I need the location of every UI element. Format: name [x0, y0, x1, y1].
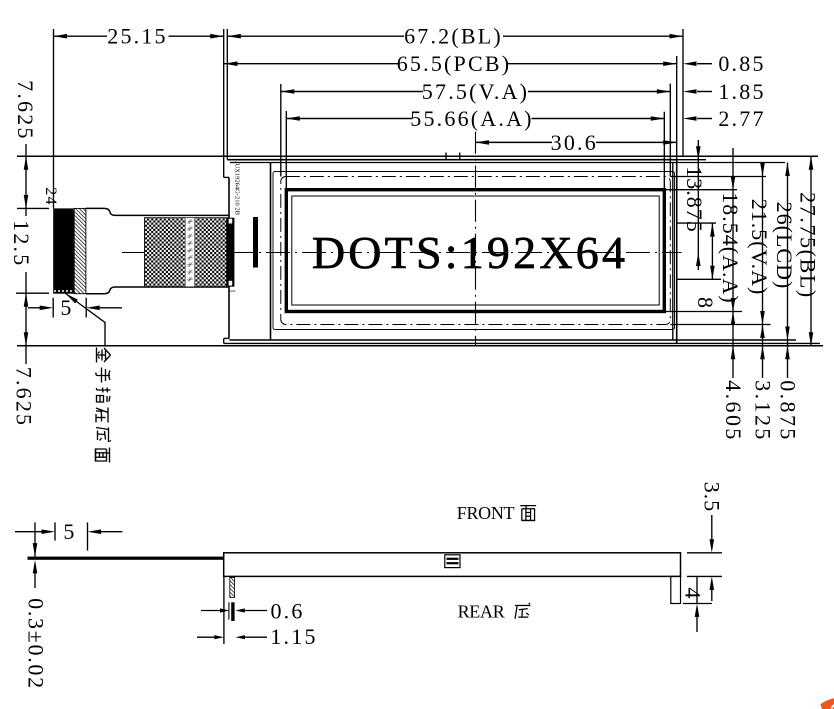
svg-text:27.75(BL): 27.75(BL)	[796, 192, 821, 299]
svg-text:25.15: 25.15	[107, 24, 168, 49]
svg-text:5: 5	[63, 519, 76, 544]
svg-text:8: 8	[693, 297, 718, 309]
svg-text:18.54(A.A): 18.54(A.A)	[718, 192, 743, 303]
svg-text:1.85: 1.85	[718, 79, 765, 104]
svg-text:5: 5	[60, 295, 73, 320]
svg-text:REAR: REAR	[458, 601, 505, 621]
svg-text:21.5(V.A): 21.5(V.A)	[747, 199, 772, 296]
svg-text:1.15: 1.15	[270, 624, 317, 649]
svg-text:0.6: 0.6	[270, 598, 304, 623]
svg-text:FRONT: FRONT	[457, 503, 515, 523]
svg-text:3.5: 3.5	[699, 482, 724, 513]
svg-text:7.625: 7.625	[12, 367, 37, 428]
svg-text:7.625: 7.625	[13, 80, 38, 140]
svg-text:0.85: 0.85	[718, 51, 765, 76]
svg-text:65.5(PCB): 65.5(PCB)	[397, 51, 512, 76]
svg-text:0.3±0.02: 0.3±0.02	[24, 598, 49, 690]
svg-text:4.605: 4.605	[721, 380, 746, 442]
svg-text:4: 4	[680, 588, 705, 600]
svg-text:67.2(BL): 67.2(BL)	[404, 24, 503, 49]
svg-text:26(LCD): 26(LCD)	[772, 202, 797, 290]
svg-text:30.6: 30.6	[551, 130, 598, 155]
svg-text:2.77: 2.77	[718, 106, 765, 131]
svg-text:3.125: 3.125	[750, 380, 775, 442]
svg-text:24: 24	[42, 187, 59, 205]
svg-text:0.875: 0.875	[776, 380, 801, 442]
svg-text:55.66(A.A): 55.66(A.A)	[410, 106, 533, 131]
svg-text:12.5: 12.5	[9, 220, 34, 267]
svg-text:1: 1	[229, 289, 237, 293]
svg-text:JUX19264G-210 2B: JUX19264G-210 2B	[233, 161, 240, 216]
svg-text:57.5(V.A): 57.5(V.A)	[422, 79, 529, 104]
svg-text:DOTS:192X64: DOTS:192X64	[312, 227, 628, 278]
